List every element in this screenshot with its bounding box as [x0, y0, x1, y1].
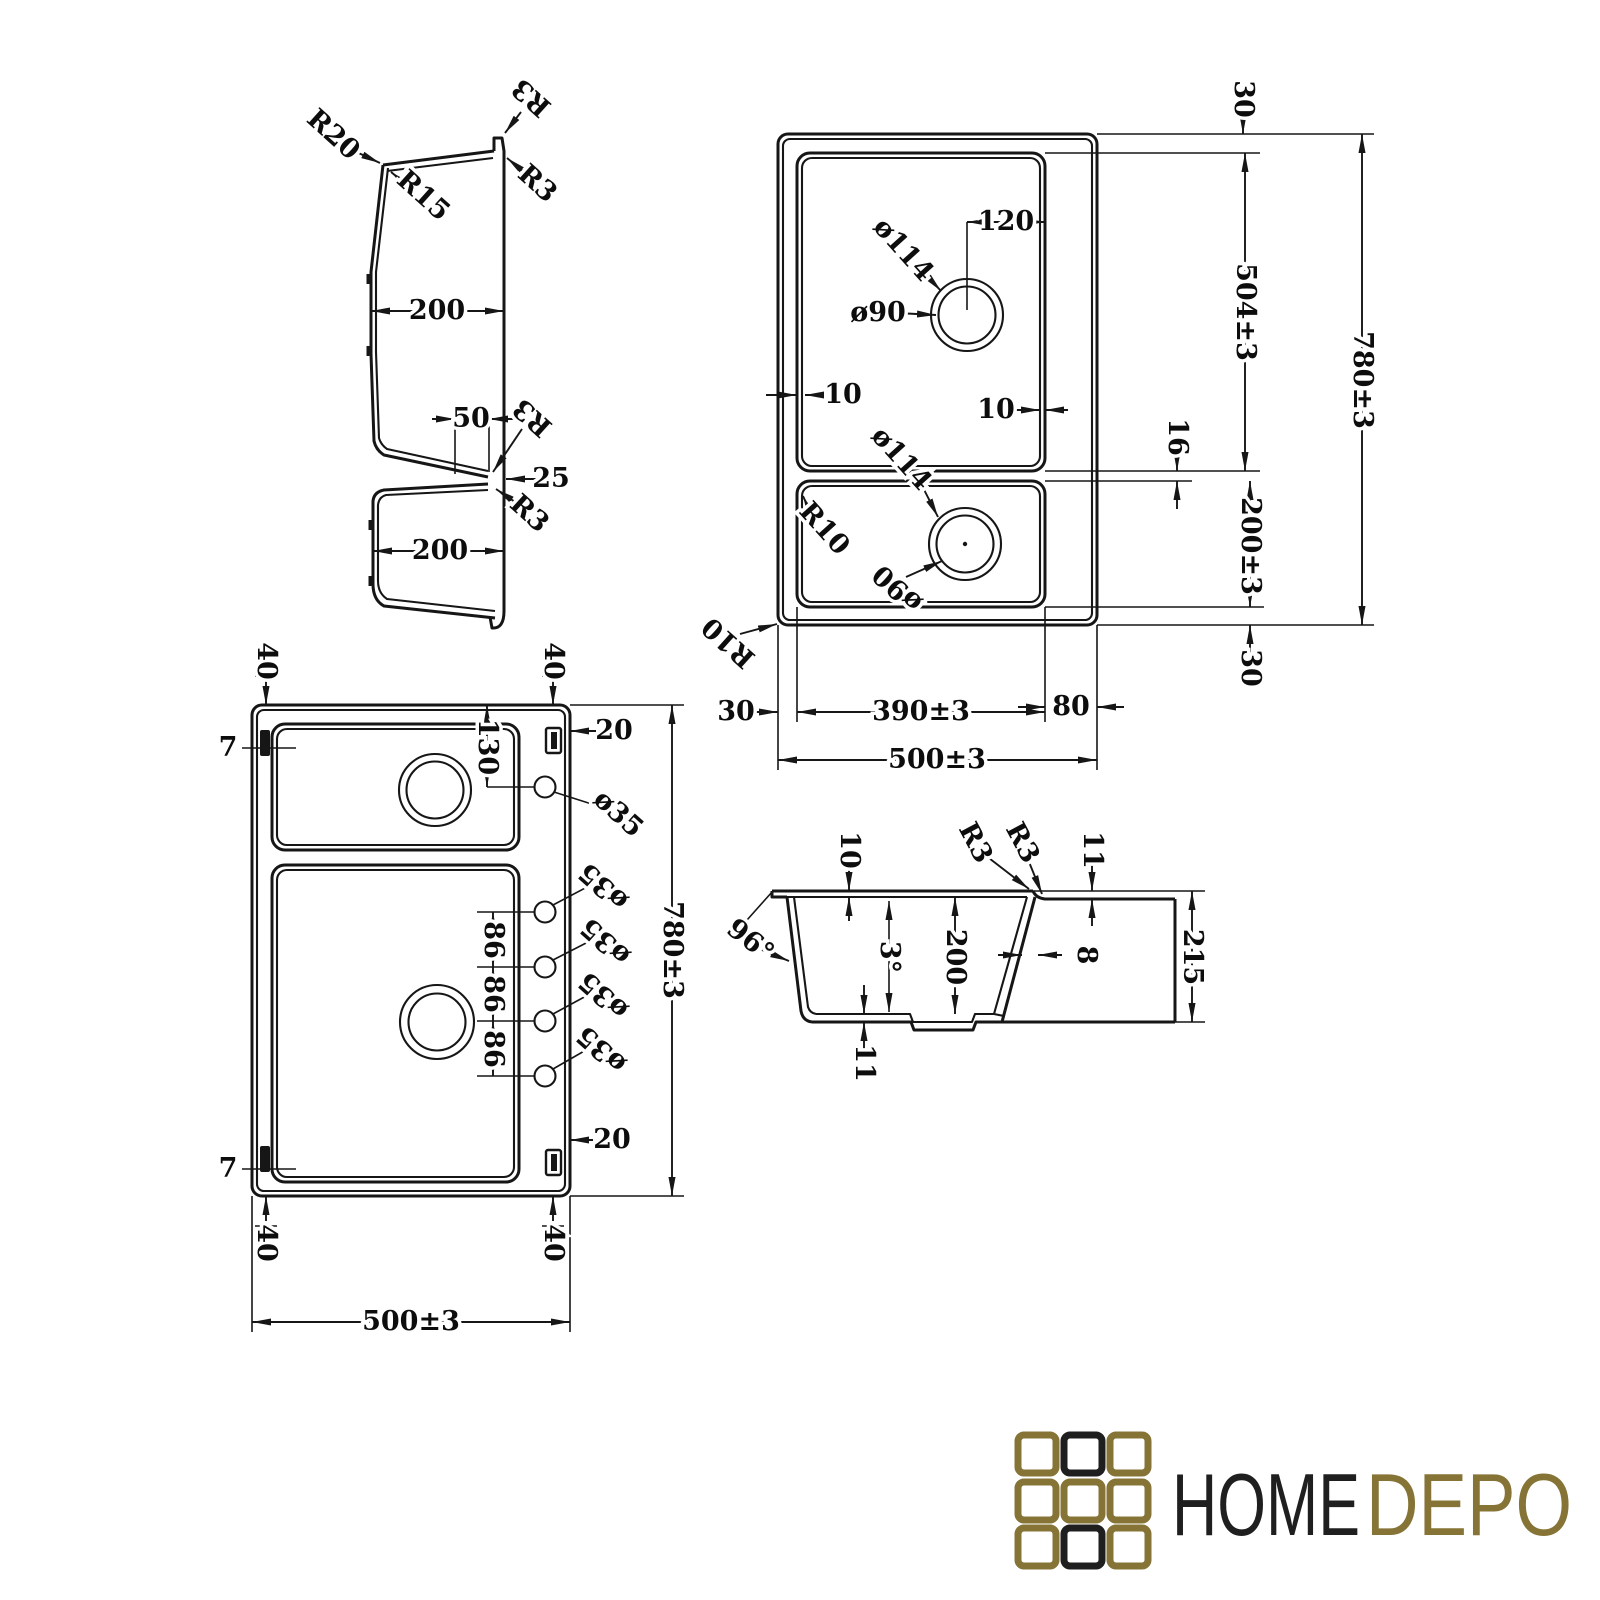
tap-hole-2: [535, 902, 556, 923]
dim-40-bottom-left: 40: [251, 1224, 282, 1262]
dim-390: 390±3: [872, 696, 970, 727]
mount-clip-bottom-right: [546, 1150, 561, 1175]
dim-r3-mid: R3: [507, 392, 558, 443]
dim-780: 780±3: [1347, 331, 1378, 429]
mount-clip-top-left: [260, 730, 270, 756]
dim-80: 80: [1052, 691, 1090, 722]
dim-7-top: 7: [219, 732, 238, 763]
plan-view-drains: 30 120 ø114 ø90 504±3 780±3 10 10 16 ø11…: [696, 80, 1378, 775]
sink-drawing-canvas: R20 R3 R15 R3 200 50 R3 25 R3 200: [0, 0, 1600, 1600]
dim-200-top: 200: [409, 295, 465, 326]
dim-r3-upper: R3: [512, 158, 563, 209]
dim-dia90-top: ø90: [850, 297, 906, 328]
dim-16: 16: [1162, 418, 1193, 456]
dim-20-top: 20: [595, 715, 633, 746]
dim-10-left: 10: [824, 379, 862, 410]
dim-504: 504±3: [1230, 263, 1261, 361]
dim-200-small-bowl: 200±3: [1235, 497, 1266, 595]
logo-grid-icon: [1018, 1435, 1148, 1566]
dim-r20: R20: [301, 103, 366, 166]
mount-clip-bottom-left: [260, 1146, 270, 1172]
dim-120: 120: [978, 206, 1034, 237]
logo-text-home: HOME: [1172, 1455, 1360, 1554]
dim-margin-top: 30: [1228, 80, 1259, 118]
dim-40-bottom-right: 40: [538, 1224, 569, 1262]
dim-96deg: 96°: [721, 913, 780, 969]
dim-130: 130: [472, 719, 503, 775]
dim-50: 50: [452, 403, 490, 434]
tap-hole-4: [535, 1011, 556, 1032]
dim-dia35-2: ø35: [573, 856, 635, 916]
mount-clip-top-right: [546, 728, 561, 753]
tap-hole-5: [535, 1066, 556, 1087]
holes-outline: [252, 705, 570, 1196]
dim-dia35-4: ø35: [573, 965, 635, 1025]
dim-40-top-right: 40: [538, 642, 569, 680]
dim-r15: R15: [391, 164, 456, 227]
dim-r10-outer: R10: [696, 611, 761, 674]
dim-dia114-top: ø114: [867, 212, 940, 288]
dim-7-bottom: 7: [219, 1153, 238, 1184]
tap-hole-1: [535, 777, 556, 798]
dim-200-depth: 200: [940, 929, 971, 985]
dim-500-plan: 500±3: [888, 744, 986, 775]
dim-86-2: 86: [478, 975, 509, 1013]
logo-text-depo: DEPO: [1366, 1455, 1572, 1554]
dim-215: 215: [1177, 929, 1208, 985]
dim-10-right: 10: [977, 394, 1015, 425]
dim-dia90-bottom: ø90: [867, 558, 929, 618]
dim-r3-top: R3: [506, 72, 557, 123]
dim-dia35-5: ø35: [571, 1019, 633, 1079]
dim-200-bottom: 200: [412, 535, 468, 566]
dim-500-holes: 500±3: [362, 1306, 460, 1337]
dim-margin-left: 30: [717, 696, 755, 727]
dim-780-holes: 780±3: [657, 901, 688, 999]
dim-dia35-3: ø35: [575, 911, 637, 971]
dim-25: 25: [532, 463, 570, 494]
sink-outer-rim-2: [252, 705, 570, 1196]
brand-logo: HOME DEPO: [1018, 1435, 1572, 1566]
section-outline: [772, 891, 1175, 1030]
dim-10-rim: 10: [834, 831, 865, 869]
dim-r3-right: R3: [999, 817, 1046, 868]
technical-drawing-page: R20 R3 R15 R3 200 50 R3 25 R3 200: [0, 0, 1600, 1600]
bowl-section-view: 10 R3 R3 11 96° 3° 200 8 215 11: [721, 817, 1208, 1082]
tap-hole-3: [535, 957, 556, 978]
dim-86-3: 86: [478, 1030, 509, 1068]
dim-40-top-left: 40: [251, 642, 282, 680]
dim-11-step: 11: [1077, 831, 1108, 869]
dim-11-base: 11: [849, 1044, 880, 1082]
dim-margin-bottom: 30: [1235, 649, 1266, 687]
dim-86-1: 86: [478, 921, 509, 959]
dim-8-wall: 8: [1071, 946, 1102, 965]
dim-r3-lower: R3: [504, 488, 555, 539]
dim-20-bottom: 20: [593, 1124, 631, 1155]
dim-3deg: 3°: [874, 941, 905, 973]
dim-dia35-1: ø35: [587, 784, 649, 844]
profile-section-view: R20 R3 R15 R3 200 50 R3 25 R3 200: [301, 72, 570, 628]
plan-view-tap-holes: 40 40 7 20 130 ø35 ø35 ø35 ø35 ø35 86 86…: [219, 642, 688, 1337]
